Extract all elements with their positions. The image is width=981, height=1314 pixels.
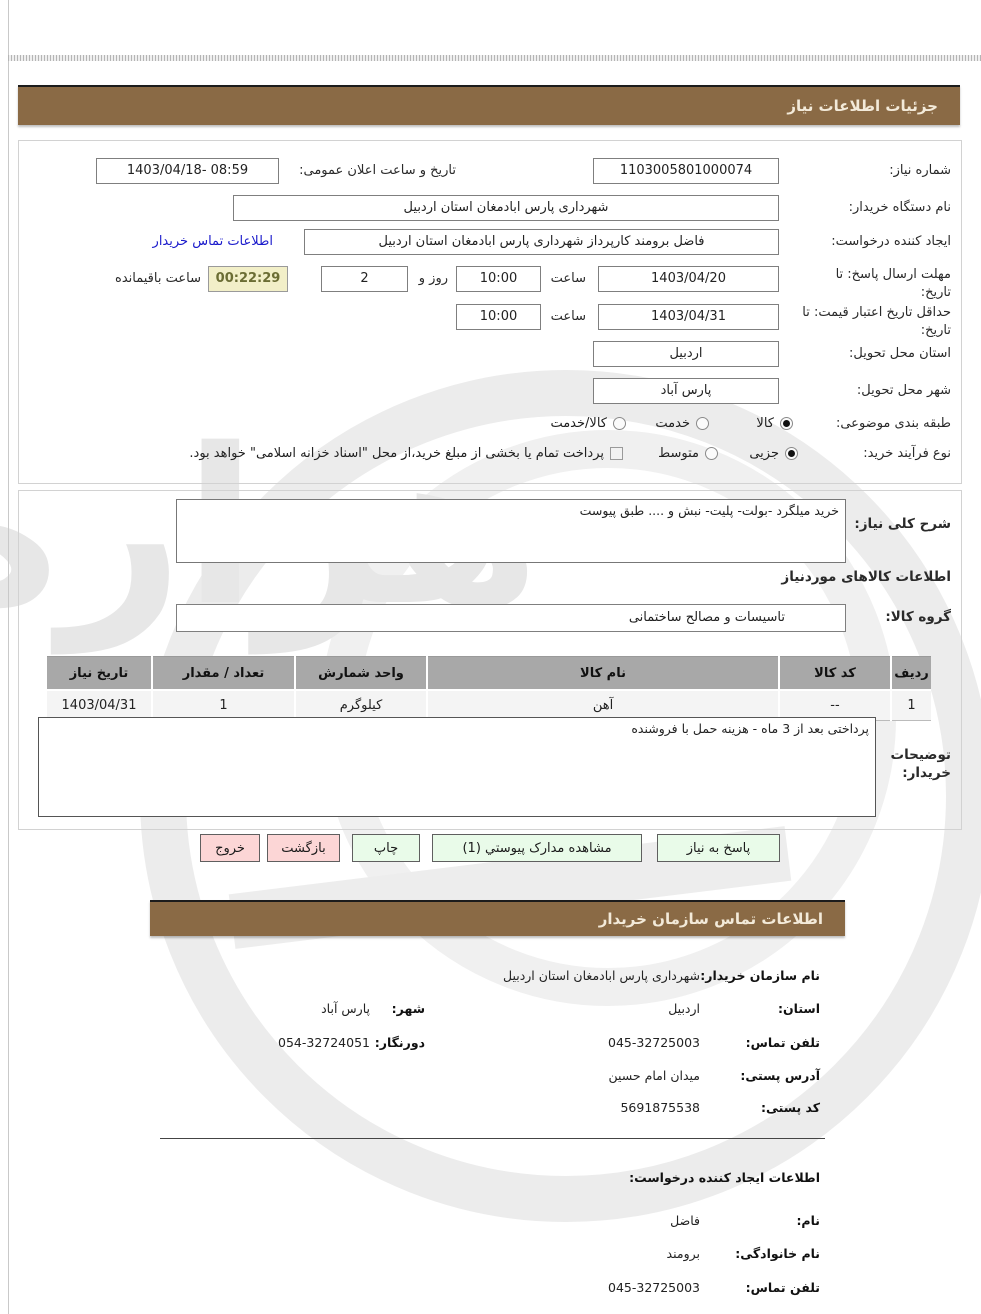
remaining-time-field: 00:22:29 (208, 266, 288, 292)
postal-address-value: میدان امام حسین (608, 1068, 700, 1083)
row-request-creator: ایجاد کننده درخواست: فاضل برومند کارپردا… (19, 229, 961, 259)
price-validity-date-field[interactable]: 1403/04/31 (598, 304, 779, 330)
radio-goods-service-icon[interactable] (613, 417, 626, 430)
announce-datetime-field[interactable]: 1403/04/18- 08:59 (96, 158, 279, 184)
price-validity-hour-label: ساعت (551, 309, 586, 324)
province-label: استان: (778, 1001, 820, 1016)
last-name-label: نام خانوادگی: (735, 1246, 820, 1261)
radio-medium-icon[interactable] (705, 447, 718, 460)
row-reply-deadline: مهلت ارسال پاسخ: تا تاریخ: 1403/04/20 سا… (19, 266, 961, 296)
delivery-province-field[interactable]: اردبیل (593, 341, 779, 367)
city-label: شهر: (392, 1001, 425, 1016)
row-purchase-process: نوع فرآیند خرید: جزیی متوسط پرداخت تمام … (19, 443, 961, 473)
section-title-buyer-contact: اطلاعات تماس سازمان خریدار (150, 900, 845, 936)
classification-label: طبقه بندی موضوعی: (836, 416, 951, 431)
cell-item-code: -- (779, 690, 891, 721)
need-details-page: هزاره جزئیات اطلاعات نیاز شماره نیاز: 11… (0, 0, 981, 1314)
last-name-value: برومند (667, 1246, 700, 1261)
delivery-province-label: استان محل تحویل: (849, 346, 951, 361)
treasury-docs-checkbox-option[interactable]: پرداخت تمام یا بخشی از مبلغ خرید،از محل … (189, 446, 623, 461)
buyer-contact-link[interactable]: اطلاعات تماس خریدار (153, 234, 273, 249)
radio-service-icon[interactable] (696, 417, 709, 430)
cell-row-number: 1 (891, 690, 931, 721)
org-name-label: نام سازمان خریدار: (700, 968, 820, 983)
view-attachments-button[interactable]: مشاهده مدارک پیوستي (1) (432, 834, 642, 862)
remaining-time-label: ساعت باقیمانده (115, 271, 201, 286)
reply-deadline-time-field[interactable]: 10:00 (456, 266, 541, 292)
creator-phone-label: تلفن تماس: (746, 1280, 820, 1295)
need-number-field[interactable]: 1103005801000074 (593, 158, 779, 184)
row-buyer-org: نام دستگاه خریدار: شهرداری پارس ابادمغان… (19, 195, 961, 225)
request-creator-label: ایجاد کننده درخواست: (831, 234, 951, 249)
row-delivery-province: استان محل تحویل: اردبیل (19, 341, 961, 371)
reply-deadline-label: مهلت ارسال پاسخ: تا تاریخ: (821, 266, 951, 301)
goods-table-row: 1 -- آهن کیلوگرم 1 1403/04/31 (46, 690, 931, 721)
delivery-city-label: شهر محل تحویل: (857, 383, 951, 398)
postal-code-value: 5691875538 (620, 1100, 700, 1115)
reply-deadline-days-field[interactable]: 2 (321, 266, 408, 292)
need-description-label: شرح کلی نیاز: (854, 516, 951, 532)
reply-to-need-button[interactable]: پاسخ به نیاز (657, 834, 780, 862)
reply-deadline-hour-label: ساعت (551, 271, 586, 286)
col-row-number: ردیف (891, 657, 931, 691)
treasury-docs-checkbox[interactable] (610, 447, 623, 460)
phone-label: تلفن تماس: (746, 1035, 820, 1050)
col-unit: واحد شمارش (295, 657, 427, 691)
section-title-text: جزئیات اطلاعات نیاز (787, 97, 938, 115)
fax-value: 054-32724051 (278, 1035, 370, 1050)
process-option-medium[interactable]: متوسط (658, 446, 718, 461)
col-quantity: تعداد / مقدار (152, 657, 295, 691)
back-button[interactable]: بازگشت (267, 834, 340, 862)
goods-info-heading: اطلاعات کالاهای موردنیاز (781, 569, 951, 585)
need-number-label: شماره نیاز: (889, 163, 951, 178)
price-validity-label: حداقل تاریخ اعتبار قیمت: تا تاریخ: (791, 304, 951, 339)
exit-button[interactable]: خروج (200, 834, 260, 862)
cell-item-name: آهن (427, 690, 779, 721)
contact-divider (160, 1138, 825, 1139)
row-price-validity: حداقل تاریخ اعتبار قیمت: تا تاریخ: 1403/… (19, 304, 961, 334)
classification-option-goods[interactable]: کالا (756, 416, 793, 431)
first-name-label: نام: (796, 1213, 820, 1228)
postal-address-label: آدرس پستی: (740, 1068, 820, 1083)
org-name-value: شهرداری پارس ابادمغان استان اردبیل (503, 968, 700, 983)
radio-goods-icon[interactable] (780, 417, 793, 430)
section-title-need-details: جزئیات اطلاعات نیاز (18, 85, 960, 125)
col-item-code: کد کالا (779, 657, 891, 691)
need-summary-panel: شماره نیاز: 1103005801000074 تاریخ و ساع… (18, 140, 962, 484)
goods-group-field[interactable]: تاسیسات و مصالح ساختمانی (176, 604, 846, 632)
price-validity-time-field[interactable]: 10:00 (456, 304, 541, 330)
page-left-border (8, 0, 9, 1314)
fax-label: دورنگار: (375, 1035, 425, 1050)
city-value: پارس آباد (321, 1001, 370, 1016)
process-option-minor[interactable]: جزیی (749, 446, 798, 461)
classification-option-service[interactable]: خدمت (655, 416, 709, 431)
request-creator-field[interactable]: فاضل برومند کارپرداز شهرداری پارس ابادمغ… (304, 229, 779, 255)
creator-phone-value: 045-32725003 (608, 1280, 700, 1295)
announce-datetime-label: تاریخ و ساعت اعلان عمومی: (299, 163, 456, 178)
row-need-number: شماره نیاز: 1103005801000074 تاریخ و ساع… (19, 158, 961, 188)
goods-table: ردیف کد کالا نام کالا واحد شمارش تعداد /… (45, 656, 931, 721)
purchase-process-label: نوع فرآیند خرید: (863, 446, 951, 461)
postal-code-label: کد پستی: (761, 1100, 820, 1115)
goods-table-header-row: ردیف کد کالا نام کالا واحد شمارش تعداد /… (46, 657, 931, 691)
phone-value: 045-32725003 (608, 1035, 700, 1050)
buyer-org-label: نام دستگاه خریدار: (849, 200, 951, 215)
top-divider (8, 55, 981, 61)
buyer-org-field[interactable]: شهرداری پارس ابادمغان استان اردبیل (233, 195, 779, 221)
cell-need-date: 1403/04/31 (46, 690, 152, 721)
cell-quantity: 1 (152, 690, 295, 721)
creator-info-heading: اطلاعات ایجاد کننده درخواست: (629, 1170, 820, 1185)
province-value: اردبیل (668, 1001, 700, 1016)
reply-deadline-days-label: روز و (419, 271, 448, 286)
row-classification: طبقه بندی موضوعی: کالا خدمت کالا/خدمت (19, 413, 961, 443)
col-item-name: نام کالا (427, 657, 779, 691)
first-name-value: فاضل (670, 1213, 700, 1228)
row-delivery-city: شهر محل تحویل: پارس آباد (19, 378, 961, 408)
buyer-notes-label: توضیحات خریدار: (871, 746, 951, 782)
reply-deadline-date-field[interactable]: 1403/04/20 (598, 266, 779, 292)
buyer-notes-textarea[interactable]: پرداختی بعد از 3 ماه - هزینه حمل با فروش… (38, 717, 876, 817)
goods-group-label: گروه کالا: (885, 609, 951, 625)
goods-info-panel: شرح کلی نیاز: خرید میلگرد -بولت- پلیت- ن… (18, 490, 962, 830)
print-button[interactable]: چاپ (352, 834, 420, 862)
classification-option-goods-service[interactable]: کالا/خدمت (550, 416, 626, 431)
delivery-city-field[interactable]: پارس آباد (593, 378, 779, 404)
radio-minor-icon[interactable] (785, 447, 798, 460)
buyer-contact-title-text: اطلاعات تماس سازمان خریدار (599, 910, 823, 928)
col-need-date: تاریخ نیاز (46, 657, 152, 691)
cell-unit: کیلوگرم (295, 690, 427, 721)
need-description-textarea[interactable]: خرید میلگرد -بولت- پلیت- نبش و .... طبق … (176, 499, 846, 563)
